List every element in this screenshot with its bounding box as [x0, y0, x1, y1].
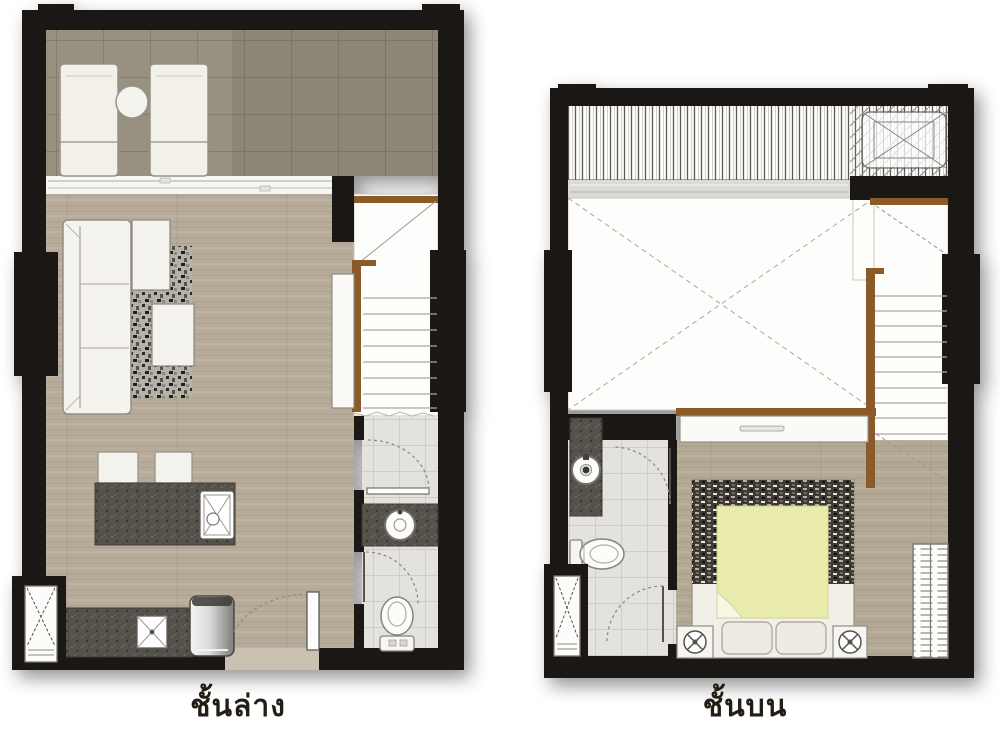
upper-floor-plan: ชั้นบน	[544, 84, 980, 723]
void-double-volume	[568, 198, 874, 410]
nightstand-lamp-right	[833, 626, 867, 658]
door-leaf	[367, 488, 429, 494]
nightstand-lamp-left	[677, 626, 713, 658]
bar-stool	[155, 452, 192, 483]
handrail	[870, 198, 948, 205]
island-sink	[200, 491, 234, 539]
lounge-chair	[60, 64, 118, 176]
column	[430, 250, 466, 412]
column	[544, 250, 572, 392]
column	[14, 252, 58, 376]
side-table	[152, 304, 194, 366]
dresser	[680, 416, 868, 442]
drawer-handle	[740, 426, 784, 431]
pillow	[722, 622, 772, 654]
handrail	[354, 196, 438, 203]
duvet	[717, 506, 828, 618]
washbasin-icon	[385, 510, 415, 541]
glass-rail	[568, 180, 850, 198]
stair-floor	[354, 194, 438, 416]
kitchen-counter	[63, 608, 193, 657]
pillow	[776, 622, 826, 654]
sliding-glass-door	[46, 176, 340, 194]
sofa	[63, 220, 131, 414]
counter-sink	[137, 616, 167, 648]
lower-floor-drawing	[10, 4, 466, 676]
column	[942, 254, 980, 384]
wardrobe	[913, 544, 948, 658]
wardrobe-cabinet	[332, 274, 354, 408]
lower-floor-plan: ชั้นล่าง	[10, 4, 466, 723]
bar-stool	[98, 452, 138, 483]
ac-unit-icon	[862, 112, 946, 168]
stringer	[866, 268, 875, 488]
toilet-icon	[380, 597, 414, 651]
upper-floor-drawing	[544, 84, 980, 682]
entrance-opening	[225, 648, 319, 670]
door-leaf	[307, 592, 319, 650]
lounge-chair	[150, 64, 208, 176]
lower-floor-label: ชั้นล่าง	[10, 690, 466, 723]
upper-floor-label: ชั้นบน	[527, 690, 963, 723]
floorplan-image: ชั้นล่าง	[0, 0, 1000, 736]
double-bed	[692, 480, 854, 658]
ac-condenser-icon	[25, 586, 57, 662]
condenser-ledge	[544, 564, 588, 678]
round-side-table	[116, 86, 148, 118]
side-table	[132, 220, 170, 290]
condenser-ledge	[12, 576, 66, 670]
void-rail	[676, 408, 876, 416]
